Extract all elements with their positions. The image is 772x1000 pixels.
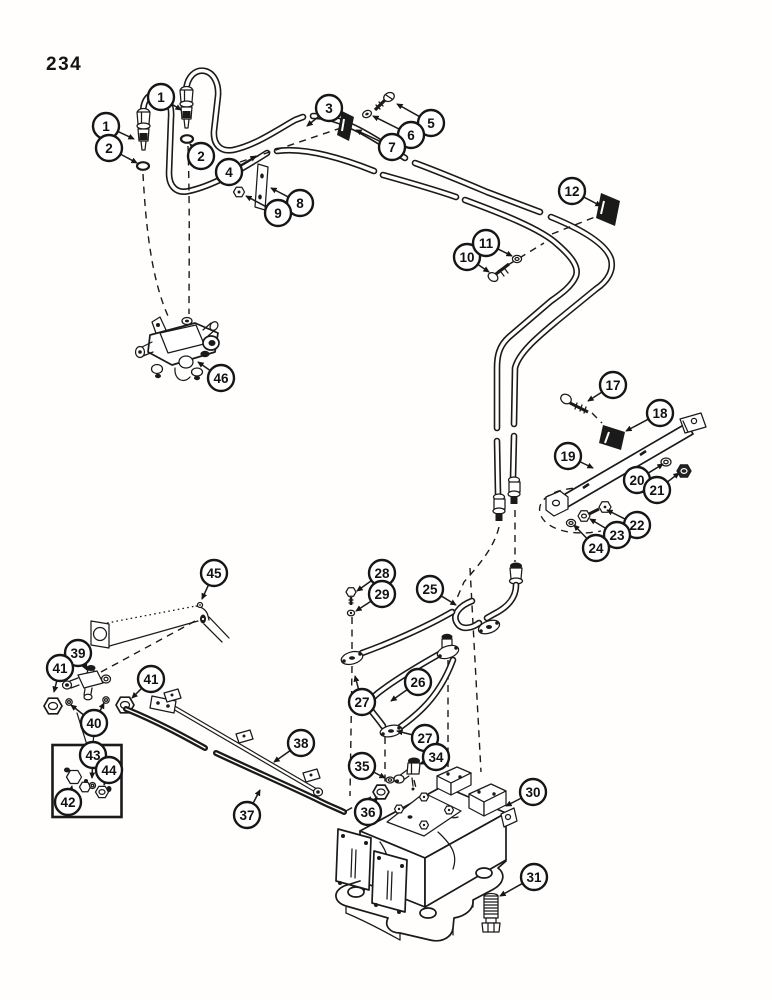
flange-fitting — [436, 634, 461, 661]
svg-text:36: 36 — [360, 805, 376, 820]
square-boom-arm — [91, 603, 229, 649]
callout-26: 26 — [391, 669, 431, 701]
svg-text:42: 42 — [60, 795, 75, 810]
svg-text:4: 4 — [225, 165, 233, 180]
svg-text:45: 45 — [206, 566, 222, 581]
callout-2: 2 — [96, 135, 137, 163]
callout-9: 9 — [246, 196, 291, 226]
svg-text:6: 6 — [407, 128, 415, 143]
fitting-stack-34-36 — [373, 758, 420, 799]
callout-42: 42 — [55, 786, 81, 815]
svg-text:7: 7 — [388, 140, 396, 155]
svg-text:9: 9 — [274, 206, 282, 221]
callout-27: 27 — [349, 676, 375, 715]
tube-nut-fitting — [180, 87, 193, 129]
control-valve-46 — [136, 317, 220, 380]
clamp-18 — [599, 425, 625, 450]
svg-text:26: 26 — [410, 675, 426, 690]
svg-text:23: 23 — [609, 528, 625, 543]
ferrule-43 — [90, 783, 96, 789]
callout-2: 2 — [188, 143, 214, 169]
svg-text:1: 1 — [157, 90, 165, 105]
o-ring — [137, 162, 149, 170]
washer-29 — [347, 610, 354, 616]
svg-text:41: 41 — [143, 672, 159, 687]
washer-11 — [512, 255, 521, 262]
svg-text:20: 20 — [629, 473, 644, 488]
svg-text:29: 29 — [374, 587, 389, 602]
callout-37: 37 — [234, 790, 260, 828]
port-block — [437, 767, 471, 795]
svg-text:46: 46 — [213, 371, 229, 386]
bolt-28 — [346, 588, 356, 605]
callout-45: 45 — [201, 560, 227, 599]
stud-31 — [482, 894, 500, 933]
svg-text:27: 27 — [417, 731, 432, 746]
callout-40: 40 — [71, 703, 107, 736]
svg-text:30: 30 — [525, 785, 540, 800]
svg-text:5: 5 — [427, 116, 435, 131]
svg-text:40: 40 — [86, 716, 101, 731]
callout-25: 25 — [417, 576, 456, 605]
callout-44: 44 — [96, 757, 122, 785]
tube-nut-fitting — [137, 109, 150, 151]
callout-18: 18 — [626, 400, 673, 431]
callout-31: 31 — [500, 864, 547, 896]
svg-text:3: 3 — [325, 101, 333, 116]
svg-text:8: 8 — [296, 196, 304, 211]
bolt-22 — [589, 502, 611, 514]
callout-38: 38 — [274, 730, 314, 762]
callout-1: 1 — [148, 84, 181, 110]
svg-text:25: 25 — [422, 582, 438, 597]
lube-rod-37 — [126, 709, 344, 812]
svg-text:2: 2 — [197, 149, 205, 164]
nut-36 — [373, 785, 389, 799]
svg-text:35: 35 — [354, 759, 370, 774]
svg-text:39: 39 — [70, 646, 85, 661]
svg-text:2: 2 — [105, 141, 113, 156]
svg-text:22: 22 — [629, 518, 644, 533]
bolt-10 — [486, 264, 509, 283]
washer-6 — [361, 109, 372, 119]
strap-8 — [255, 164, 268, 210]
svg-text:11: 11 — [479, 236, 494, 251]
bolt-washer-group — [486, 255, 521, 283]
callout-30: 30 — [506, 779, 546, 806]
svg-text:31: 31 — [526, 870, 542, 885]
svg-text:24: 24 — [588, 541, 604, 556]
svg-text:12: 12 — [564, 184, 579, 199]
side-ear — [501, 808, 517, 827]
svg-text:21: 21 — [649, 483, 665, 498]
callout-19: 19 — [555, 443, 593, 469]
svg-text:17: 17 — [605, 378, 620, 393]
exploded-parts-diagram: 1122345678910111217181920212223242526272… — [0, 0, 772, 1000]
svg-text:38: 38 — [293, 736, 309, 751]
screw-5 — [375, 91, 396, 110]
callout-46: 46 — [198, 362, 234, 391]
svg-text:41: 41 — [52, 661, 68, 676]
callout-41: 41 — [132, 666, 164, 698]
clip-12 — [596, 193, 620, 226]
nut-44 — [96, 786, 112, 798]
svg-text:44: 44 — [101, 763, 117, 778]
svg-text:34: 34 — [428, 750, 444, 765]
washer-35 — [386, 777, 394, 783]
svg-text:28: 28 — [374, 566, 390, 581]
svg-text:37: 37 — [239, 808, 254, 823]
nut-9 — [234, 187, 245, 197]
bolt-17 — [559, 392, 588, 413]
callout-11: 11 — [473, 230, 512, 256]
callout-17: 17 — [588, 372, 626, 401]
nut-23 — [578, 511, 590, 521]
nut-41-left — [44, 698, 62, 714]
callout-36: 36 — [355, 797, 381, 825]
svg-text:1: 1 — [102, 119, 110, 134]
callout-12: 12 — [559, 178, 601, 206]
svg-text:18: 18 — [652, 406, 668, 421]
svg-text:10: 10 — [459, 250, 474, 265]
valve-section-cover — [372, 851, 407, 914]
callout-35: 35 — [349, 753, 385, 779]
callout-4: 4 — [216, 156, 256, 185]
nut-21 — [677, 465, 691, 477]
o-ring — [181, 135, 193, 143]
svg-text:19: 19 — [560, 449, 575, 464]
callout-29: 29 — [356, 581, 395, 611]
svg-text:27: 27 — [354, 695, 369, 710]
manual-page: 234 — [0, 0, 772, 1000]
